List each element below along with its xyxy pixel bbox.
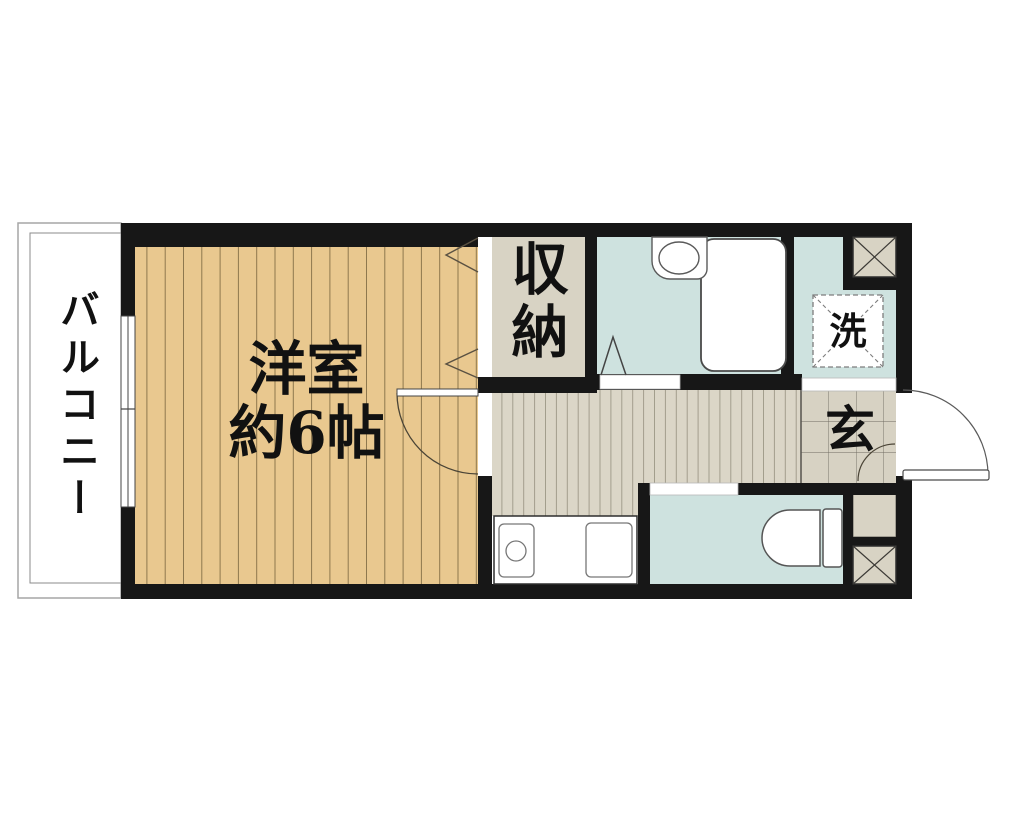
wall-top-room bbox=[121, 223, 478, 247]
western-room-label: 洋室 約6帖 bbox=[135, 337, 478, 465]
balcony-window bbox=[121, 316, 135, 507]
front-door bbox=[903, 390, 989, 480]
wall-left-upper bbox=[121, 223, 135, 317]
toilet bbox=[762, 509, 842, 567]
floor-plan-image: バルコニー 洋室 約6帖 収納 洗 玄 bbox=[0, 0, 1024, 819]
kitchen-sink bbox=[586, 523, 632, 577]
toilet-door-threshold bbox=[650, 483, 738, 495]
laundry-label: 洗 bbox=[803, 313, 893, 350]
pipe-shaft-top bbox=[853, 237, 896, 277]
western-room-name: 洋室 bbox=[135, 337, 478, 401]
wall-laundry-corner bbox=[775, 374, 802, 390]
wall-bottom bbox=[121, 584, 912, 599]
balcony-label: バルコニー bbox=[56, 289, 96, 524]
wall-toilet-top bbox=[738, 483, 896, 495]
western-room-size: 約6帖 bbox=[135, 401, 478, 465]
wall-toilet-left bbox=[638, 483, 650, 584]
front-door-panel bbox=[903, 470, 989, 480]
closet-label: 収納 bbox=[507, 239, 564, 365]
wall-shaft-bottom bbox=[843, 277, 912, 290]
entrance-label: 玄 bbox=[800, 405, 900, 455]
wall-room-hall-divider bbox=[478, 476, 492, 584]
toilet-tank bbox=[823, 509, 842, 567]
pipe-shaft-bottom bbox=[853, 546, 896, 584]
wall-toilet-right bbox=[843, 493, 853, 584]
wall-shoe-cabinet-bottom bbox=[853, 537, 896, 546]
kitchen-floor bbox=[492, 483, 638, 516]
laundry-threshold bbox=[802, 378, 896, 391]
hallway-floor bbox=[492, 390, 801, 483]
wall-right-upper bbox=[896, 223, 912, 393]
bathtub bbox=[701, 239, 786, 371]
wall-closet-bath-divider bbox=[585, 237, 597, 377]
wall-closet-bottom bbox=[478, 377, 597, 393]
washbasin bbox=[652, 237, 707, 279]
wall-right-lower bbox=[896, 476, 912, 599]
kitchen-counter bbox=[494, 516, 637, 584]
kitchen-burner bbox=[506, 541, 526, 561]
bathroom-door-threshold bbox=[600, 375, 680, 389]
front-door-swing bbox=[903, 390, 988, 475]
shoe-cabinet bbox=[853, 493, 896, 537]
